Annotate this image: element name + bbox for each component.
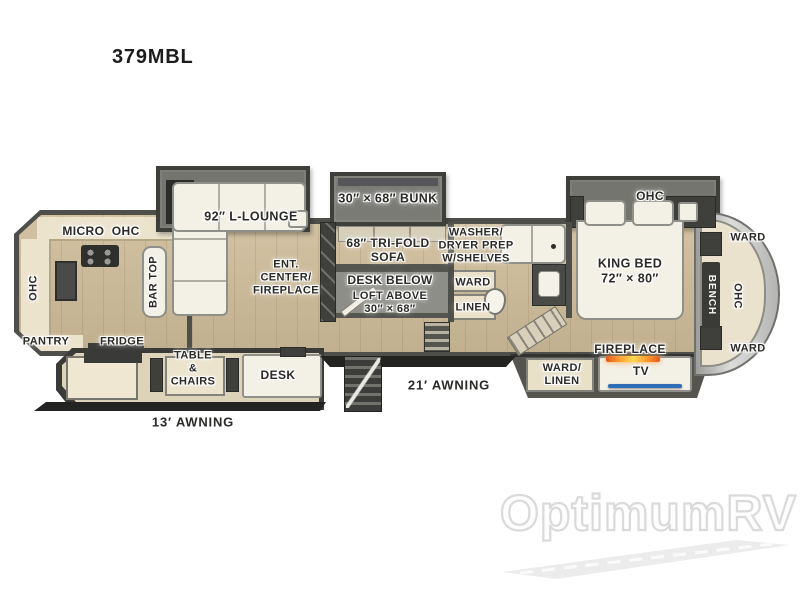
sink-icon — [538, 271, 560, 297]
ent-center-cabinet — [320, 222, 336, 322]
nightstand — [678, 202, 698, 222]
l-lounge-sofa-back — [172, 182, 306, 232]
dinette-table — [165, 356, 225, 396]
washer-divider — [531, 226, 533, 262]
kitchen-counter-left — [21, 239, 51, 337]
label-awning-13: 13′ AWNING — [152, 414, 234, 429]
cooktop-icon — [81, 245, 119, 267]
bedroom-wall — [566, 222, 572, 318]
king-bed-mattress — [576, 220, 684, 320]
end-table — [288, 210, 308, 228]
entry-steps-rail — [346, 358, 380, 408]
desk-surface — [242, 354, 322, 398]
ward-linen-cabinet — [526, 358, 594, 392]
kitchen-appliance-icon — [55, 261, 77, 301]
bunkroom-right-wall — [448, 222, 454, 322]
chair-right — [226, 358, 239, 392]
tv-screen-icon — [608, 384, 682, 388]
chair-left — [150, 358, 163, 392]
trifold-sofa-cushions — [338, 226, 446, 242]
pillow-left — [584, 200, 626, 226]
cap-cabinet-top — [700, 232, 722, 256]
watermark-brand-text: OptimumRV — [500, 484, 797, 542]
watermark-logo: OptimumRV — [498, 484, 794, 580]
bar-top-counter — [142, 246, 167, 318]
model-title: 379MBL — [112, 46, 194, 69]
loft-floor — [336, 272, 448, 318]
slide-bunk — [330, 172, 446, 226]
bunkroom-divider-wall — [336, 264, 450, 272]
desk-chair — [280, 347, 306, 357]
label-awning-21: 21′ AWNING — [408, 377, 490, 392]
cap-cabinet-bottom — [700, 326, 722, 350]
washer-dryer-counter — [500, 224, 566, 264]
drain-dot-icon — [551, 244, 556, 249]
bench-seat — [702, 262, 720, 328]
watermark-road-icon — [498, 536, 792, 580]
fireplace-flame-icon — [606, 356, 660, 362]
fridge-counter — [84, 350, 142, 363]
pillow-right — [632, 200, 674, 226]
awning-rail-13 — [34, 402, 326, 411]
loft-ladder-icon — [424, 322, 450, 352]
floorplan-canvas: 379MBL — [0, 0, 800, 600]
